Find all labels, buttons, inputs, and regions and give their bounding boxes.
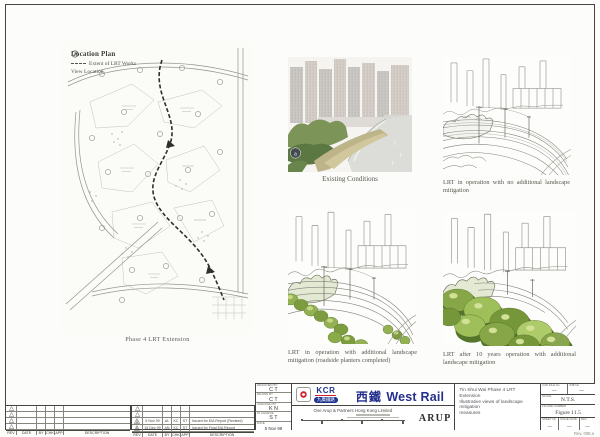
sketch-ten-years-caption: LRT after 10 years operation with additi… [443, 351, 576, 367]
rev-label: REV [581, 418, 587, 421]
credit-value: 5 Nov 99 [256, 426, 291, 431]
header-app: APP [55, 431, 64, 435]
cad-file-label: CAD FILE No [542, 384, 559, 387]
consultant-subtext-line [356, 414, 390, 415]
revision-triangle-icon [9, 418, 14, 423]
west-rail-english: West Rail [386, 390, 444, 404]
legend-title: Location Plan [71, 50, 136, 58]
rev-date: 5 Nov 99 [143, 418, 163, 424]
credit-value: S T [256, 415, 291, 421]
rev-by: AN [163, 425, 172, 431]
rev-value: — [580, 424, 595, 429]
refs-column: CAD FILE No — JOB No — SCALE N.T.S. FIGU… [541, 384, 595, 430]
credit-drawn: DRAWN BY C T [256, 393, 291, 402]
credit-incharge: IN CHARGE S T [256, 412, 291, 421]
kcr-logo: KCR 九廣鐵路 [296, 387, 338, 403]
figure-number: Figure 11.5 [541, 410, 595, 416]
plot-stamp: Rev. 008.a [574, 431, 594, 436]
sketch-planters [288, 210, 416, 344]
legend-item-view: View Location [71, 69, 136, 75]
legend-item-label: Extent of LRT Works [89, 61, 136, 67]
legend-item-label: View Location [71, 69, 104, 75]
location-plan: Location Plan Extent of LRT Works View L… [62, 42, 253, 334]
logos-cell: KCR 九廣鐵路 西鐵 West Rail Ove Arup & Partner… [292, 384, 456, 430]
cad-file-cell: CAD FILE No — [541, 384, 568, 394]
revision-table-right: A 5 Nov 99 AL KC ST Issued for EIA Repor… [131, 405, 255, 430]
refs-row-sheet: SHEET No — ISSUE DATE — REV — [541, 418, 595, 430]
existing-photo-image: a [288, 57, 412, 172]
rev-chk: KC [172, 418, 181, 424]
revision-row-b: B 15 Dec 99 AN KC ST Issued for Final EI… [132, 425, 254, 432]
rev-description: Issued for Final EIA Report [190, 425, 254, 431]
rev-cell: REV — [580, 418, 595, 430]
west-rail-logo: 西鐵 West Rail [356, 388, 444, 406]
drawing-sheet: Location Plan Extent of LRT Works View L… [0, 0, 600, 437]
west-rail-chinese: 西鐵 [356, 390, 382, 404]
issue-date-label: ISSUE DATE [560, 418, 577, 421]
sheet-value: — [541, 424, 558, 429]
refs-row-figure: FIGURE NUMBER Figure 11.5 [541, 405, 595, 418]
rev-by: AL [163, 418, 172, 424]
sketch-no-mitigation-drawing [443, 57, 571, 175]
project-title-line: measures [459, 411, 537, 417]
rev-app: ST [181, 425, 190, 431]
view-location-symbol [71, 50, 79, 58]
sketch-planters-caption: LRT in operation with additional landsca… [288, 349, 417, 365]
revision-triangle-icon [9, 424, 14, 429]
existing-conditions-caption: Existing Conditions [288, 175, 412, 183]
credit-designed: DESIGNED BY C T [256, 384, 291, 393]
revision-table-left: REV DATE BY CHK APP DESCRIPTION [5, 405, 131, 430]
graphic-scale-bar [301, 420, 405, 425]
consultant-subtext-line [347, 417, 399, 418]
kcr-wordmark: KCR 九廣鐵路 [314, 387, 338, 403]
credit-checked: CHECKED BY K N [256, 403, 291, 412]
revision-triangle-icon: B [134, 425, 140, 431]
revision-triangle-icon [9, 412, 14, 417]
kcr-swirl-icon [296, 387, 311, 402]
job-value: — [568, 388, 595, 393]
figure-label: FIGURE NUMBER [542, 405, 566, 408]
header-by: BY [37, 431, 46, 435]
project-title-line: Tin Shui Wai Phase 4 LRT Extension [459, 388, 537, 400]
sketch-ten-years-drawing [443, 212, 576, 346]
kcr-chinese-badge: 九廣鐵路 [314, 397, 338, 403]
header-rev: REV [132, 433, 143, 437]
sketch-ten-years [443, 212, 576, 346]
sketch-planters-drawing [288, 210, 416, 344]
refs-row-file: CAD FILE No — JOB No — [541, 384, 595, 395]
revision-triangle-icon [9, 406, 14, 411]
sketch-no-mitigation-caption: LRT in operation with no additional land… [443, 179, 570, 195]
job-cell: JOB No — [568, 384, 595, 394]
header-app: APP [181, 433, 190, 437]
header-chk: CHK [172, 433, 181, 437]
rev-date: 15 Dec 99 [143, 425, 163, 431]
sketch-no-mitigation [443, 57, 571, 175]
project-title-cell: Tin Shui Wai Phase 4 LRT Extension Illus… [455, 384, 541, 430]
sheet-cell: SHEET No — [541, 418, 559, 430]
header-by: BY [163, 433, 172, 437]
header-description: DESCRIPTION [64, 431, 130, 435]
project-title-line: Illustrative views of landscape mitigati… [459, 400, 537, 412]
rev-description: Issued for EIA Report (Revised) [190, 418, 254, 424]
header-description: DESCRIPTION [190, 433, 254, 437]
figure-cell: FIGURE NUMBER Figure 11.5 [541, 405, 595, 417]
view-marker-letter: a [294, 151, 297, 157]
revision-triangle-icon [135, 412, 140, 417]
sheet-label: SHEET No [542, 418, 556, 421]
credit-label: DATE [257, 422, 265, 425]
title-block: DESIGNED BY C T DRAWN BY C T CHECKED BY … [255, 383, 595, 430]
consultant-cell: Ove Arup & Partners Hong Kong Limited AR… [292, 405, 455, 430]
cad-file-value: — [541, 388, 567, 393]
kcr-text: KCR [315, 387, 336, 396]
revision-table-header: REV DATE BY CHK APP DESCRIPTION [132, 432, 254, 437]
credits-column: DESIGNED BY C T DRAWN BY C T CHECKED BY … [256, 384, 292, 430]
revision-triangle-icon [135, 406, 140, 411]
extent-line-symbol [71, 63, 86, 64]
arup-logo: ARUP [419, 413, 452, 424]
revision-row-a: A 5 Nov 99 AL KC ST Issued for EIA Repor… [132, 418, 254, 425]
job-label: JOB No [569, 384, 579, 387]
header-date: DATE [17, 431, 37, 435]
header-date: DATE [143, 433, 163, 437]
issue-date-value: — [559, 424, 578, 429]
revision-table-header: REV DATE BY CHK APP DESCRIPTION [6, 430, 130, 435]
refs-row-scale: SCALE N.T.S. [541, 395, 595, 405]
header-rev: REV [6, 431, 17, 435]
map-caption: Phase 4 LRT Extension [62, 336, 253, 343]
legend-item-extent: Extent of LRT Works [71, 61, 136, 67]
credit-value: C T [256, 397, 291, 403]
rev-app: ST [181, 418, 190, 424]
scale-value: N.T.S. [541, 397, 595, 403]
consultant-name: Ove Arup & Partners Hong Kong Limited [295, 408, 411, 413]
scale-cell: SCALE N.T.S. [541, 395, 595, 404]
header-chk: CHK [46, 431, 55, 435]
revision-triangle-icon: A [134, 418, 140, 424]
location-plan-map [62, 42, 253, 334]
rev-chk: KC [172, 425, 181, 431]
credit-date: DATE 5 Nov 99 [256, 422, 291, 430]
map-legend: Location Plan Extent of LRT Works View L… [71, 50, 136, 75]
existing-conditions-photo: a [288, 57, 412, 172]
issue-date-cell: ISSUE DATE — [559, 418, 579, 430]
